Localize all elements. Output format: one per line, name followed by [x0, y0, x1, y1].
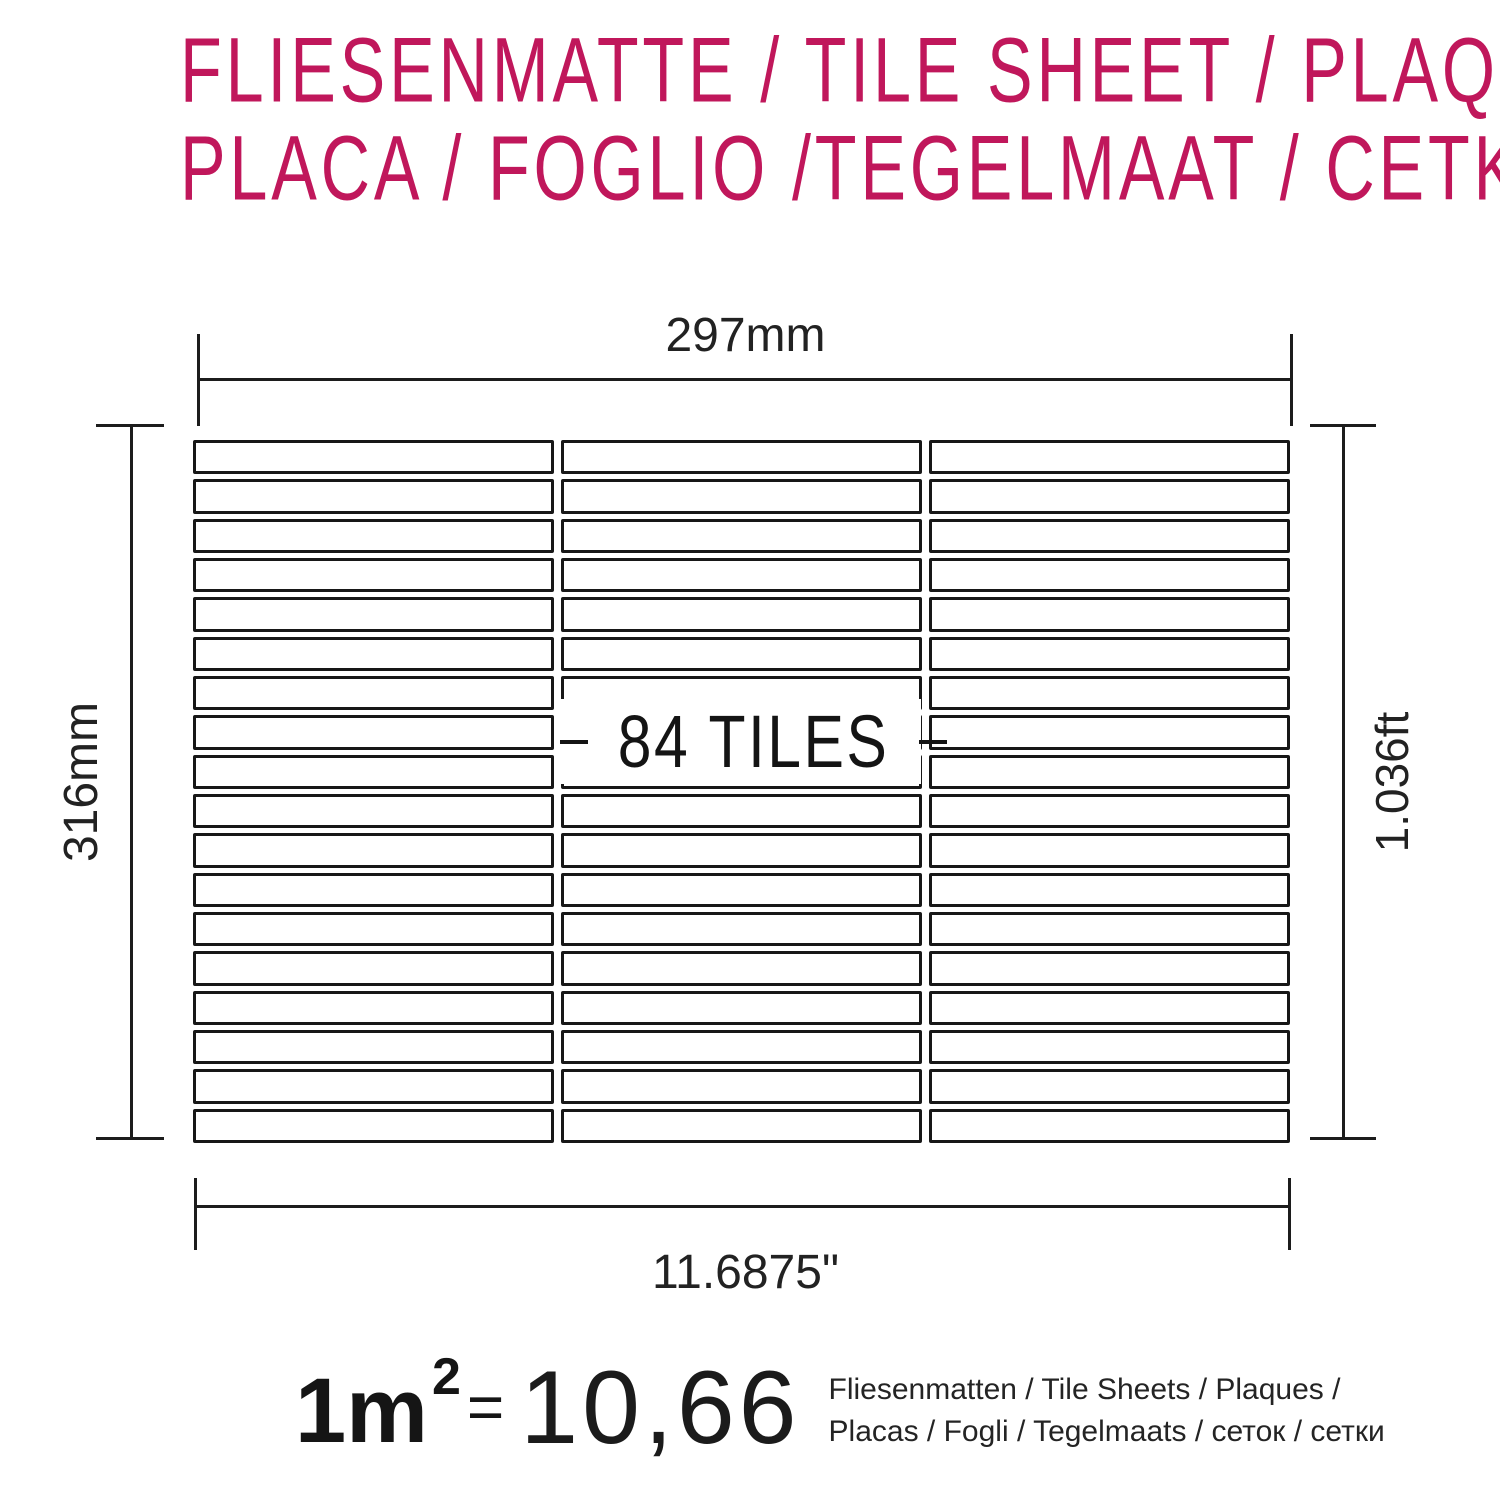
page-title: FLIESENMATTE / TILE SHEET / PLAQUE PLACA…	[0, 22, 1500, 218]
tile	[193, 991, 554, 1025]
dimension-line-bottom	[195, 1205, 1290, 1208]
tile	[561, 1030, 922, 1064]
title-line-1: FLIESENMATTE / TILE SHEET / PLAQUE	[180, 21, 1320, 121]
conversion-units: Fliesenmatten / Tile Sheets / Plaques / …	[829, 1369, 1385, 1453]
tile	[561, 440, 922, 474]
tile	[929, 1069, 1290, 1103]
dimension-label-right: 1.036ft	[1362, 682, 1422, 882]
dimension-label-top: 297mm	[198, 308, 1293, 363]
tile	[929, 519, 1290, 553]
tile	[929, 1109, 1290, 1143]
dimension-cap-left-bottom	[96, 1137, 164, 1140]
tile	[929, 951, 1290, 985]
tile	[929, 912, 1290, 946]
tile	[561, 833, 922, 867]
dimension-cap-right-top	[1310, 424, 1376, 427]
tile	[561, 597, 922, 631]
tile	[193, 951, 554, 985]
tile	[561, 873, 922, 907]
dimension-label-left: 316mm	[52, 682, 112, 882]
dimension-tick-top-right	[1290, 334, 1293, 426]
conversion-equals-sign: =	[467, 1375, 504, 1439]
tile	[929, 755, 1290, 789]
tile	[561, 637, 922, 671]
tile	[929, 597, 1290, 631]
tile	[561, 794, 922, 828]
tile	[929, 676, 1290, 710]
tile	[193, 1109, 554, 1143]
sheet-label: 84 TILES	[556, 699, 921, 784]
dimension-line-right	[1342, 426, 1345, 1139]
tile	[193, 597, 554, 631]
tile	[193, 479, 554, 513]
dimension-tick-bottom-left	[194, 1178, 197, 1250]
dimension-line-top	[198, 378, 1293, 381]
title-line-2: PLACA / FOGLIO /TEGELMAAT / CETKA	[180, 119, 1320, 219]
dimension-tick-top-left	[197, 334, 200, 426]
dimension-tick-bottom-right	[1288, 1178, 1291, 1250]
tile	[561, 558, 922, 592]
tile	[561, 951, 922, 985]
tile	[193, 833, 554, 867]
tile	[561, 1069, 922, 1103]
tile	[193, 637, 554, 671]
tile	[561, 991, 922, 1025]
conversion-units-line2: Placas / Fogli / Tegelmaats / сеток / се…	[829, 1415, 1385, 1448]
conversion-units-line1: Fliesenmatten / Tile Sheets / Plaques /	[829, 1373, 1341, 1406]
tile	[929, 794, 1290, 828]
tile	[193, 558, 554, 592]
dimension-cap-right-bottom	[1310, 1137, 1376, 1140]
tile	[561, 519, 922, 553]
tile	[193, 912, 554, 946]
tile	[929, 715, 1290, 749]
tile	[561, 912, 922, 946]
tile	[193, 755, 554, 789]
tile	[561, 479, 922, 513]
tile	[193, 715, 554, 749]
tile-sheet-infographic: FLIESENMATTE / TILE SHEET / PLAQUE PLACA…	[0, 0, 1500, 1500]
tile	[193, 1030, 554, 1064]
tile	[193, 873, 554, 907]
tile	[929, 558, 1290, 592]
tile	[929, 991, 1290, 1025]
tile	[929, 637, 1290, 671]
tile	[561, 1109, 922, 1143]
sheet-label-text: 84 TILES	[618, 705, 890, 779]
dimension-label-bottom: 11.6875"	[198, 1245, 1293, 1300]
dimension-line-left	[130, 426, 133, 1139]
tile	[193, 440, 554, 474]
dimension-cap-left-top	[96, 424, 164, 427]
tile	[929, 873, 1290, 907]
tile	[193, 1069, 554, 1103]
tile	[193, 519, 554, 553]
tile	[193, 794, 554, 828]
tile	[929, 479, 1290, 513]
tile	[193, 676, 554, 710]
conversion-value: 10,66	[520, 1368, 800, 1449]
conversion-area: 1m	[295, 1374, 428, 1449]
tile	[929, 1030, 1290, 1064]
tile	[929, 440, 1290, 474]
conversion-area-exponent: 2	[432, 1351, 461, 1403]
tile-grid	[193, 440, 1290, 1143]
tile	[929, 833, 1290, 867]
conversion-formula: 1m 2 = 10,66 Fliesenmatten / Tile Sheets…	[295, 1368, 1385, 1449]
